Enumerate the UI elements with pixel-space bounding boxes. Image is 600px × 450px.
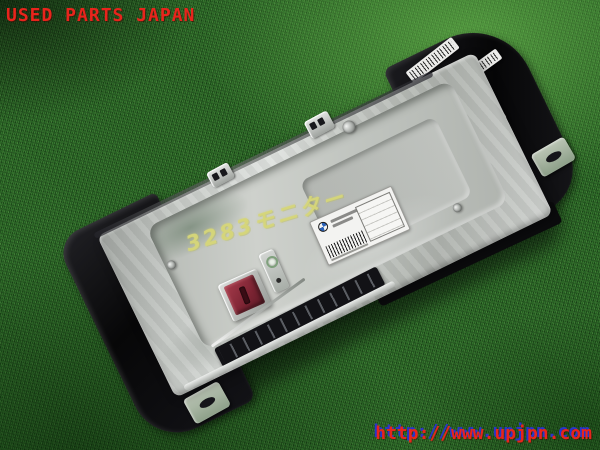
oval-hole	[198, 395, 217, 410]
watermark-used-parts-japan: USED PARTS JAPAN	[6, 5, 195, 26]
screw-hole-dark	[275, 277, 282, 284]
bmw-roundel-icon	[317, 220, 330, 233]
clip-slot	[317, 117, 326, 126]
clip-slot	[211, 172, 220, 181]
watermark-shop-url: http://www.upjpn.com	[375, 423, 592, 444]
oval-hole	[544, 149, 563, 164]
clip-slot	[219, 168, 228, 177]
connector-slot	[238, 285, 250, 304]
photo-scene: 3283モニター	[0, 0, 600, 450]
clip-slot	[309, 121, 318, 130]
